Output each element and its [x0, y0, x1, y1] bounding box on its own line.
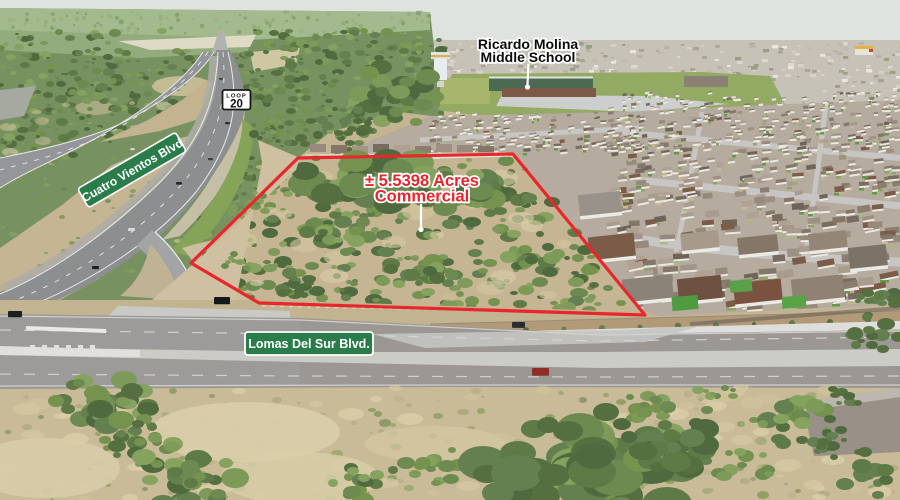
svg-text:Middle School: Middle School	[481, 49, 576, 65]
svg-text:Commercial: Commercial	[375, 188, 469, 206]
svg-text:Lomas Del Sur Blvd.: Lomas Del Sur Blvd.	[248, 337, 370, 351]
svg-text:20: 20	[230, 99, 243, 111]
